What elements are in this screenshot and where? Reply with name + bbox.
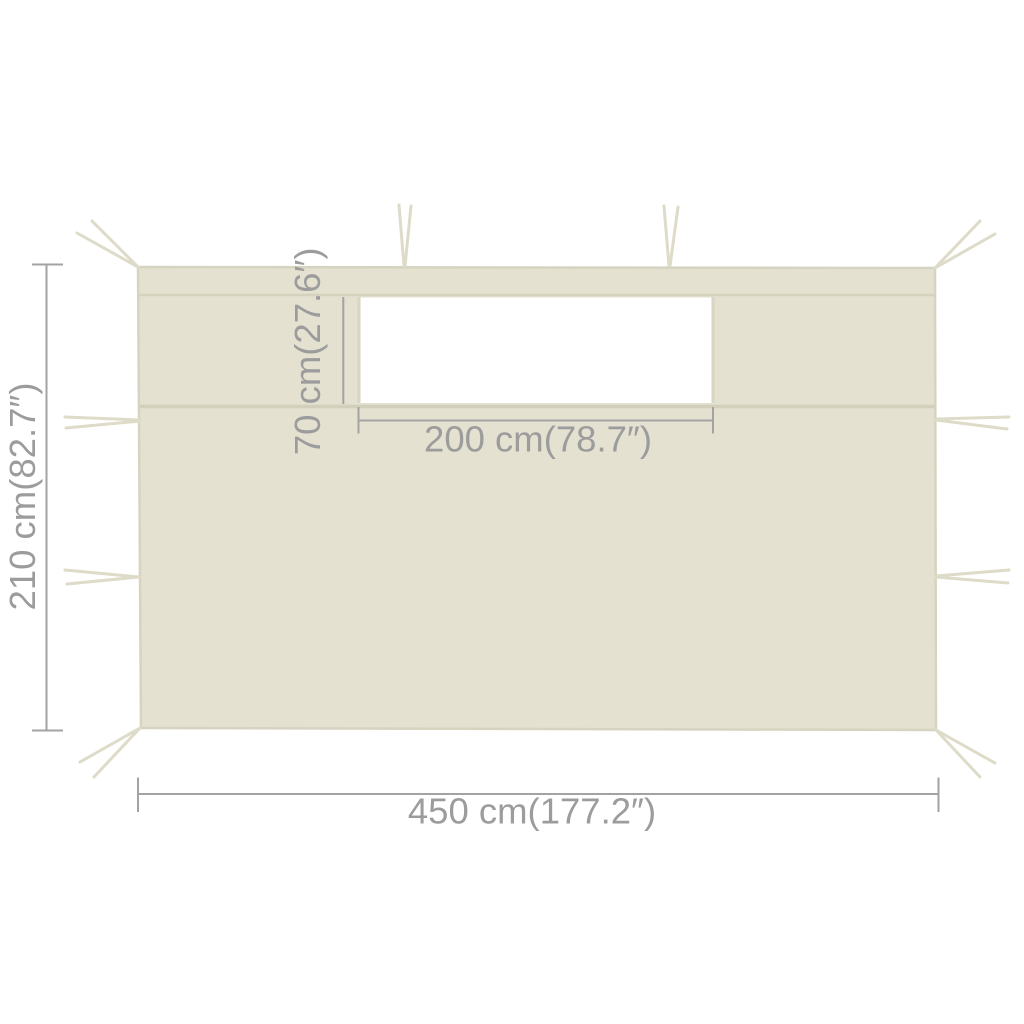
svg-text:200 cm(78.7″): 200 cm(78.7″) — [424, 419, 652, 460]
svg-text:450 cm(177.2″): 450 cm(177.2″) — [408, 791, 656, 832]
svg-text:70 cm(27.6″): 70 cm(27.6″) — [287, 247, 328, 455]
svg-text:210 cm(82.7″): 210 cm(82.7″) — [2, 383, 43, 611]
